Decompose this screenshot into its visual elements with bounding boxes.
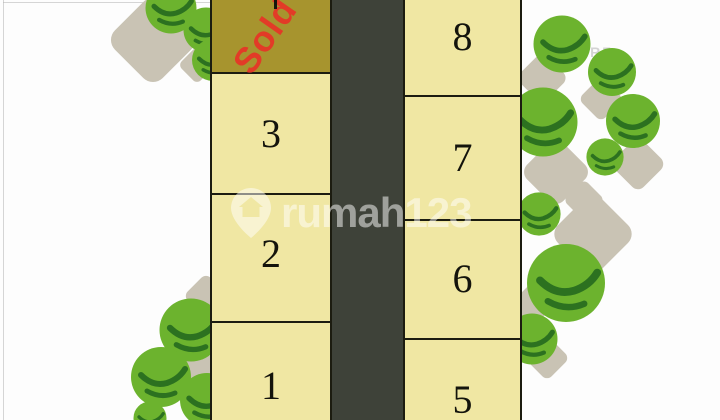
lot-3: 3 — [212, 74, 330, 195]
vegetation-layer — [0, 0, 720, 420]
lot-8: 8 — [405, 0, 520, 97]
lot-number: 6 — [453, 259, 473, 299]
tree-icon — [586, 138, 623, 175]
tree-icon — [527, 244, 605, 322]
tree-icon — [606, 94, 660, 148]
shrub-cluster-top-right — [509, 15, 667, 221]
partial-number-mark — [274, 0, 277, 9]
sold-label: Sold — [224, 0, 305, 82]
lot-2: 2 — [212, 195, 330, 323]
siteplan-image: ARF — [0, 0, 720, 420]
lot-6: 6 — [405, 221, 520, 340]
lot-number: 2 — [261, 234, 281, 274]
lot-number: 3 — [261, 114, 281, 154]
tree-icon — [517, 192, 560, 235]
lot-number: 5 — [453, 380, 473, 420]
lot-5: 5 — [405, 340, 520, 420]
shrub-cluster-bottom-right — [507, 190, 637, 381]
lot-1: 1 — [212, 323, 330, 420]
lot-sold: Sold — [212, 0, 330, 74]
lot-7: 7 — [405, 97, 520, 220]
lot-column-left: Sold 3 2 1 — [210, 0, 332, 420]
lot-number: 8 — [453, 17, 473, 57]
tree-icon — [534, 15, 591, 72]
lot-number: 1 — [261, 366, 281, 406]
tree-icon — [588, 48, 636, 96]
lot-number: 7 — [453, 138, 473, 178]
lot-column-right: 8 7 6 5 — [403, 0, 522, 420]
